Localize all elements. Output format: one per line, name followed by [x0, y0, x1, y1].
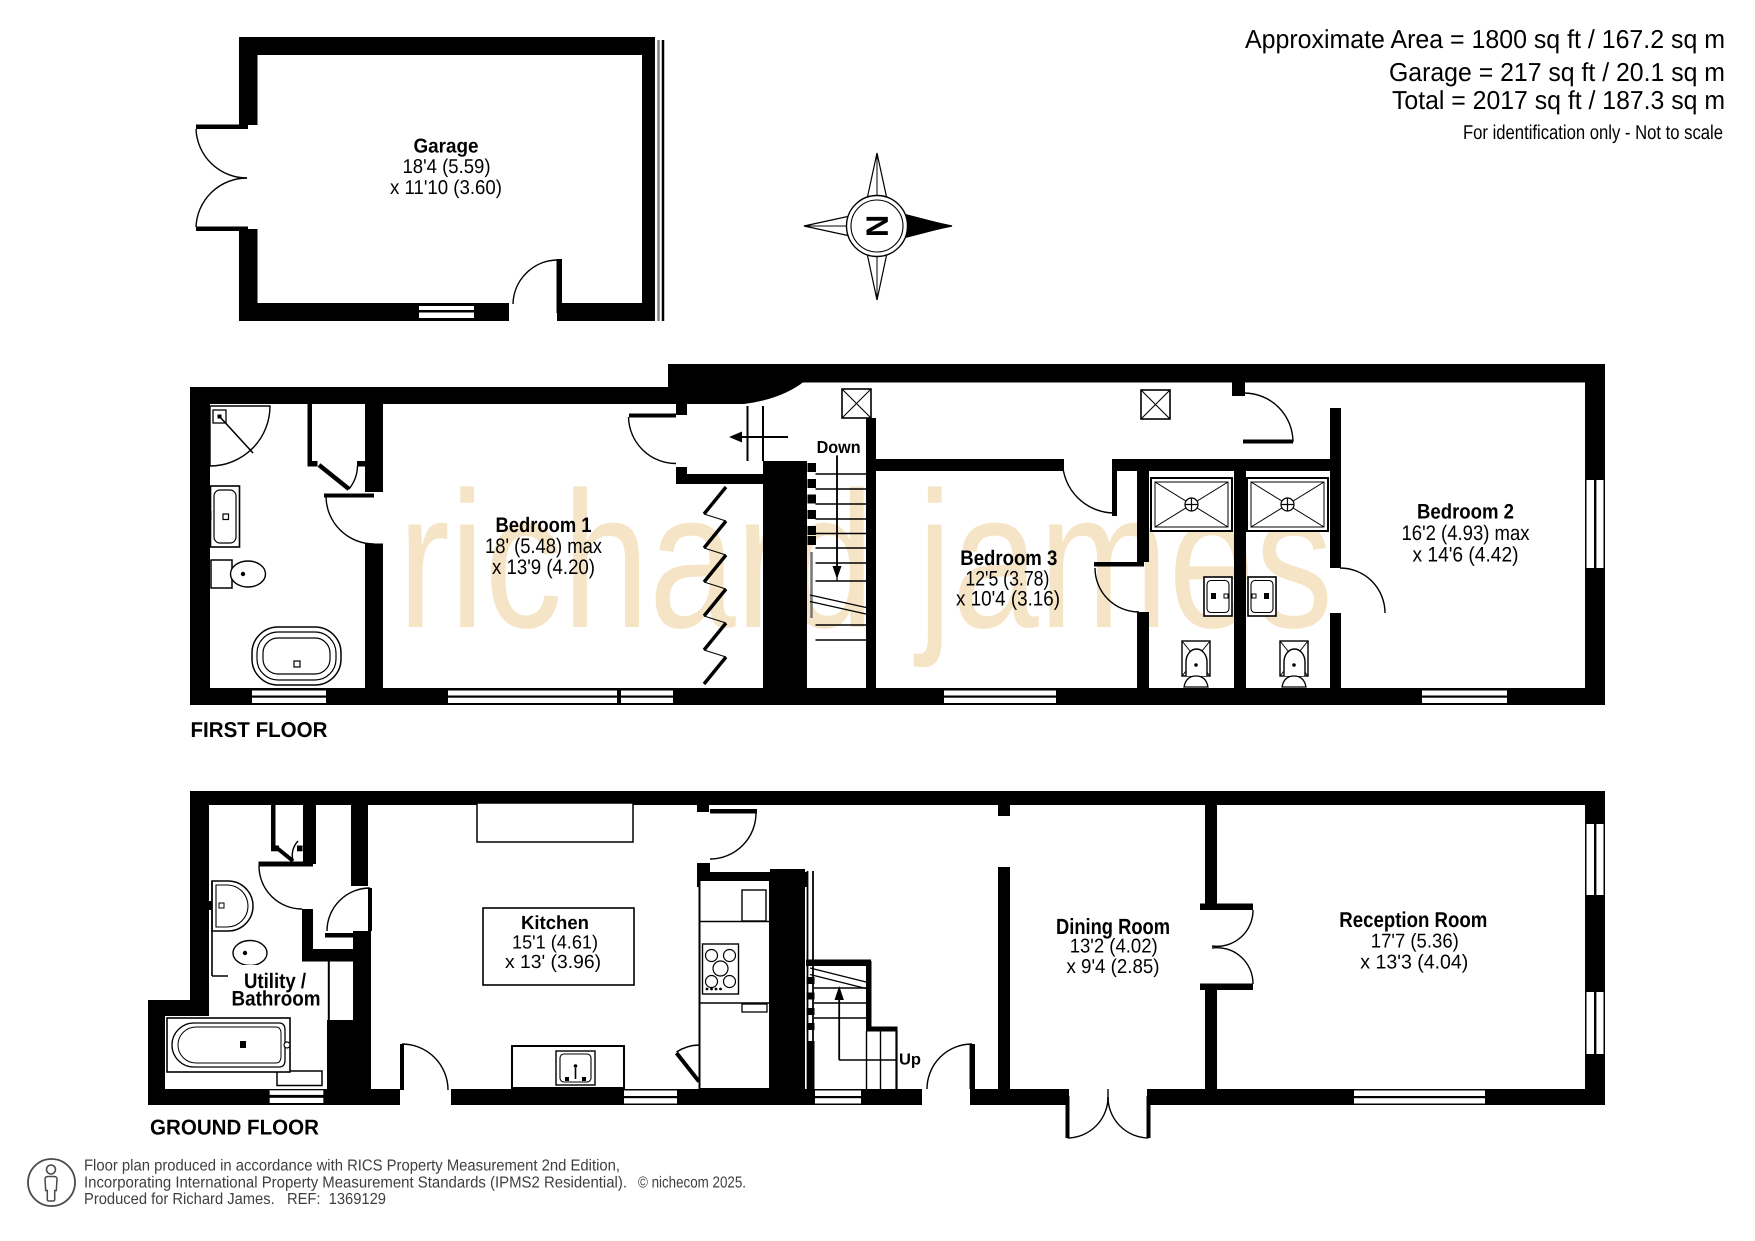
svg-text:Approximate Area = 1800 sq ft: Approximate Area = 1800 sq ft / 167.2 sq… [1245, 24, 1725, 54]
svg-text:x 14'6 (4.42): x 14'6 (4.42) [1413, 544, 1519, 567]
svg-text:Bathroom: Bathroom [232, 988, 321, 1011]
svg-text:13'2 (4.02): 13'2 (4.02) [1070, 936, 1158, 958]
svg-text:Floor plan produced in accorda: Floor plan produced in accordance with R… [84, 1158, 620, 1175]
svg-text:Garage: Garage [414, 136, 479, 158]
svg-text:For identification only - Not: For identification only - Not to scale [1463, 122, 1723, 144]
svg-text:Up: Up [899, 1052, 921, 1069]
svg-text:© nichecom 2025.: © nichecom 2025. [638, 1175, 746, 1192]
svg-text:Bedroom 1: Bedroom 1 [496, 514, 592, 537]
svg-text:18' (5.48) max: 18' (5.48) max [485, 535, 602, 558]
svg-text:Bedroom 2: Bedroom 2 [1417, 501, 1514, 524]
svg-text:x 11'10 (3.60): x 11'10 (3.60) [390, 177, 502, 199]
svg-text:N: N [860, 215, 895, 237]
svg-text:x 13' (3.96): x 13' (3.96) [505, 952, 601, 973]
svg-text:15'1 (4.61): 15'1 (4.61) [512, 933, 598, 954]
svg-text:x 9'4 (2.85): x 9'4 (2.85) [1067, 956, 1160, 978]
svg-text:17'7 (5.36): 17'7 (5.36) [1371, 931, 1459, 953]
svg-text:Incorporating International Pr: Incorporating International Property Mea… [84, 1175, 627, 1192]
svg-text:x 10'4 (3.16): x 10'4 (3.16) [956, 588, 1060, 611]
svg-text:Kitchen: Kitchen [521, 913, 589, 934]
svg-text:GROUND FLOOR: GROUND FLOOR [150, 1116, 319, 1140]
svg-text:FIRST FLOOR: FIRST FLOOR [191, 718, 328, 742]
svg-text:Down: Down [817, 437, 861, 457]
svg-text:18'4 (5.59): 18'4 (5.59) [403, 156, 491, 178]
svg-text:Produced for Richard James.: Produced for Richard James. REF: 1369129 [84, 1191, 386, 1208]
svg-text:x 13'3 (4.04): x 13'3 (4.04) [1360, 952, 1468, 974]
svg-text:Total = 2017 sq ft / 187.3 sq: Total = 2017 sq ft / 187.3 sq m [1392, 85, 1725, 115]
svg-text:x 13'9 (4.20): x 13'9 (4.20) [492, 556, 595, 579]
svg-text:16'2 (4.93) max: 16'2 (4.93) max [1402, 522, 1530, 545]
svg-text:Garage = 217 sq ft / 20.1 sq m: Garage = 217 sq ft / 20.1 sq m [1389, 57, 1725, 87]
svg-text:Reception Room: Reception Room [1339, 908, 1487, 932]
